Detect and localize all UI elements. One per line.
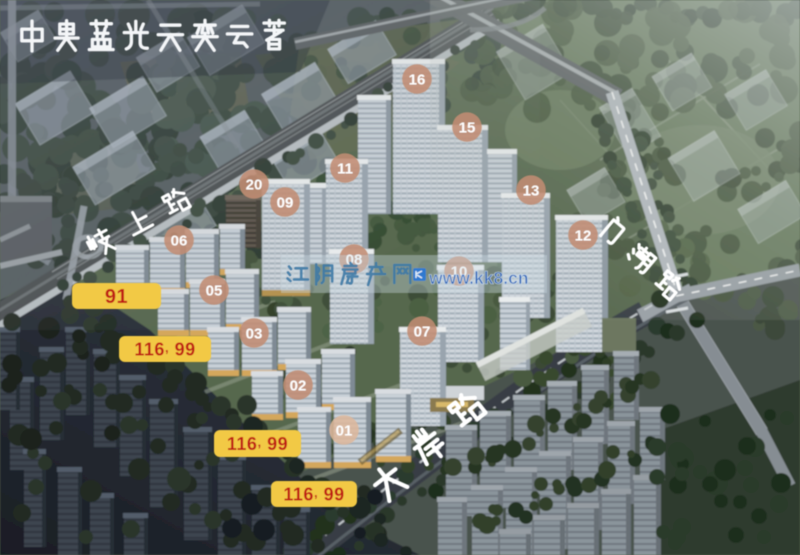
svg-text:01: 01 — [336, 422, 353, 439]
svg-text:www.kk8.cn: www.kk8.cn — [428, 268, 529, 288]
svg-text:13: 13 — [523, 182, 540, 199]
svg-text:20: 20 — [246, 176, 263, 193]
svg-text:16: 16 — [409, 71, 426, 88]
svg-text:05: 05 — [206, 282, 223, 299]
svg-text:07: 07 — [414, 323, 431, 340]
svg-text:02: 02 — [290, 377, 307, 394]
svg-text:09: 09 — [277, 194, 294, 211]
svg-text:03: 03 — [246, 325, 263, 342]
svg-text:91: 91 — [105, 286, 128, 308]
svg-text:06: 06 — [171, 232, 188, 249]
svg-text:11: 11 — [337, 160, 353, 177]
svg-text:12: 12 — [575, 227, 592, 244]
svg-text:15: 15 — [459, 119, 476, 136]
